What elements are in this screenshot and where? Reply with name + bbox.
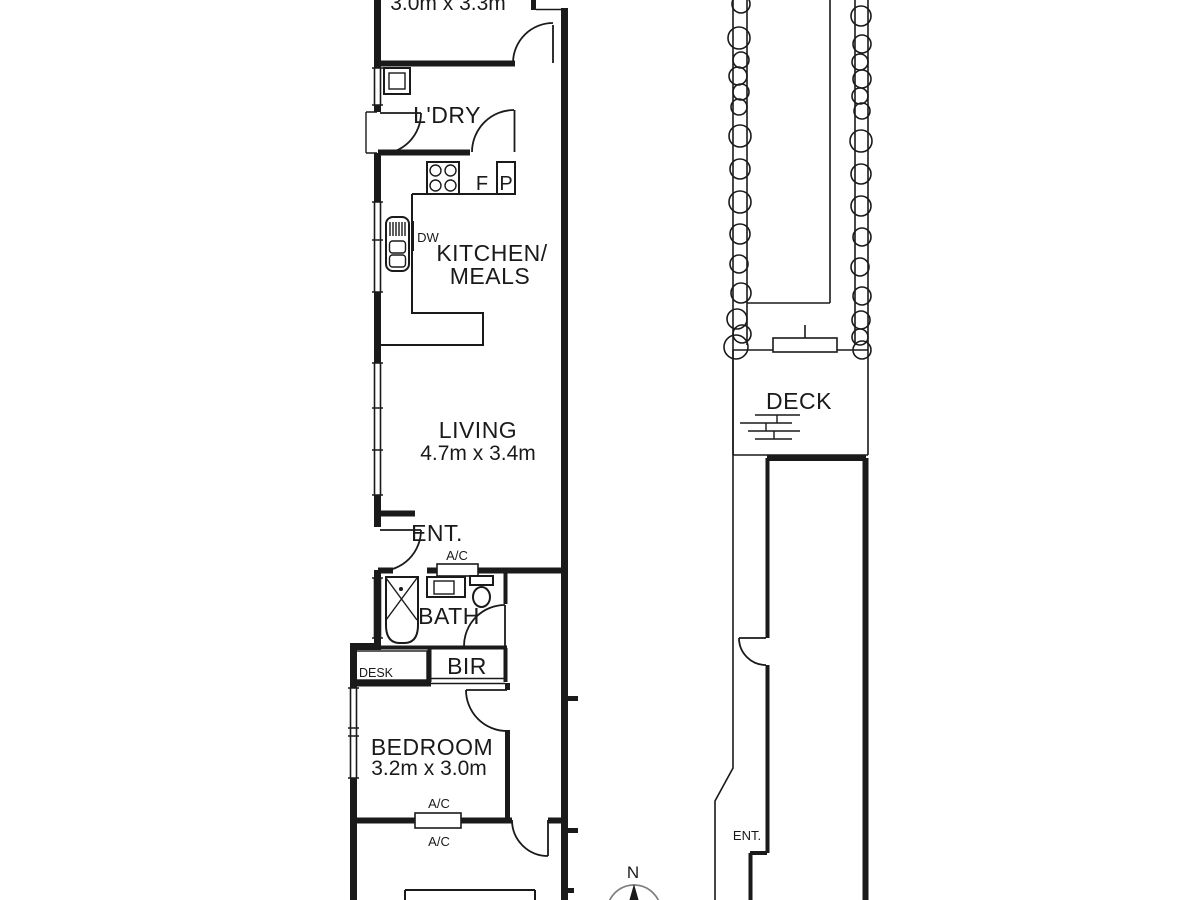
fridge-label: F (476, 173, 488, 195)
living-window (372, 363, 383, 495)
desk-label: DESK (359, 666, 394, 680)
vanity (427, 577, 465, 597)
laundry-trough (384, 68, 410, 94)
living-dims: 4.7m x 3.4m (420, 442, 536, 465)
entry-label: ENT. (411, 520, 463, 546)
pantry-label: P (499, 173, 512, 195)
laundry-label: L'DRY (413, 102, 481, 128)
boundary-lines (715, 0, 868, 900)
rear-entry-label: ENT. (733, 828, 761, 843)
main-house: 3.0m x 3.3m L'DRY F P DW KITCHEN/ MEALS … (348, 0, 578, 900)
floorplan-page: 3.0m x 3.3m L'DRY F P DW KITCHEN/ MEALS … (0, 0, 1200, 900)
robe-label: BIR (447, 653, 487, 679)
bedroom-window (348, 688, 359, 778)
kitchen-window (372, 202, 383, 292)
top-room-door (513, 23, 553, 63)
rear-room-door (512, 820, 548, 856)
living-label: LIVING (439, 417, 517, 443)
bedroom-ac-top-label: A/C (428, 796, 450, 811)
north-label: N (627, 863, 639, 882)
floorplan-drawing: 3.0m x 3.3m L'DRY F P DW KITCHEN/ MEALS … (0, 0, 1200, 900)
kitchen-label-line2: MEALS (450, 263, 530, 289)
rear-yard: DECK ENT. (715, 0, 872, 900)
deck-label: DECK (766, 388, 832, 414)
deck-step (773, 325, 837, 353)
compass: N (607, 863, 661, 900)
bath-ac-unit (437, 564, 478, 576)
deck-paving-icon (740, 415, 800, 439)
bedroom-ac-bottom-label: A/C (428, 834, 450, 849)
cooktop (427, 162, 459, 194)
bath-ac-label: A/C (446, 548, 468, 563)
bathtub (386, 577, 418, 643)
bedroom-door (466, 690, 507, 731)
bedroom-dims: 3.2m x 3.0m (371, 757, 487, 780)
bedroom-ac-unit (415, 813, 461, 828)
kitchen-sink (386, 217, 409, 271)
bath-label: BATH (418, 603, 480, 629)
rear-entry-door (739, 638, 766, 665)
top-room-dims: 3.0m x 3.3m (390, 0, 506, 15)
laundry-window (372, 68, 383, 105)
